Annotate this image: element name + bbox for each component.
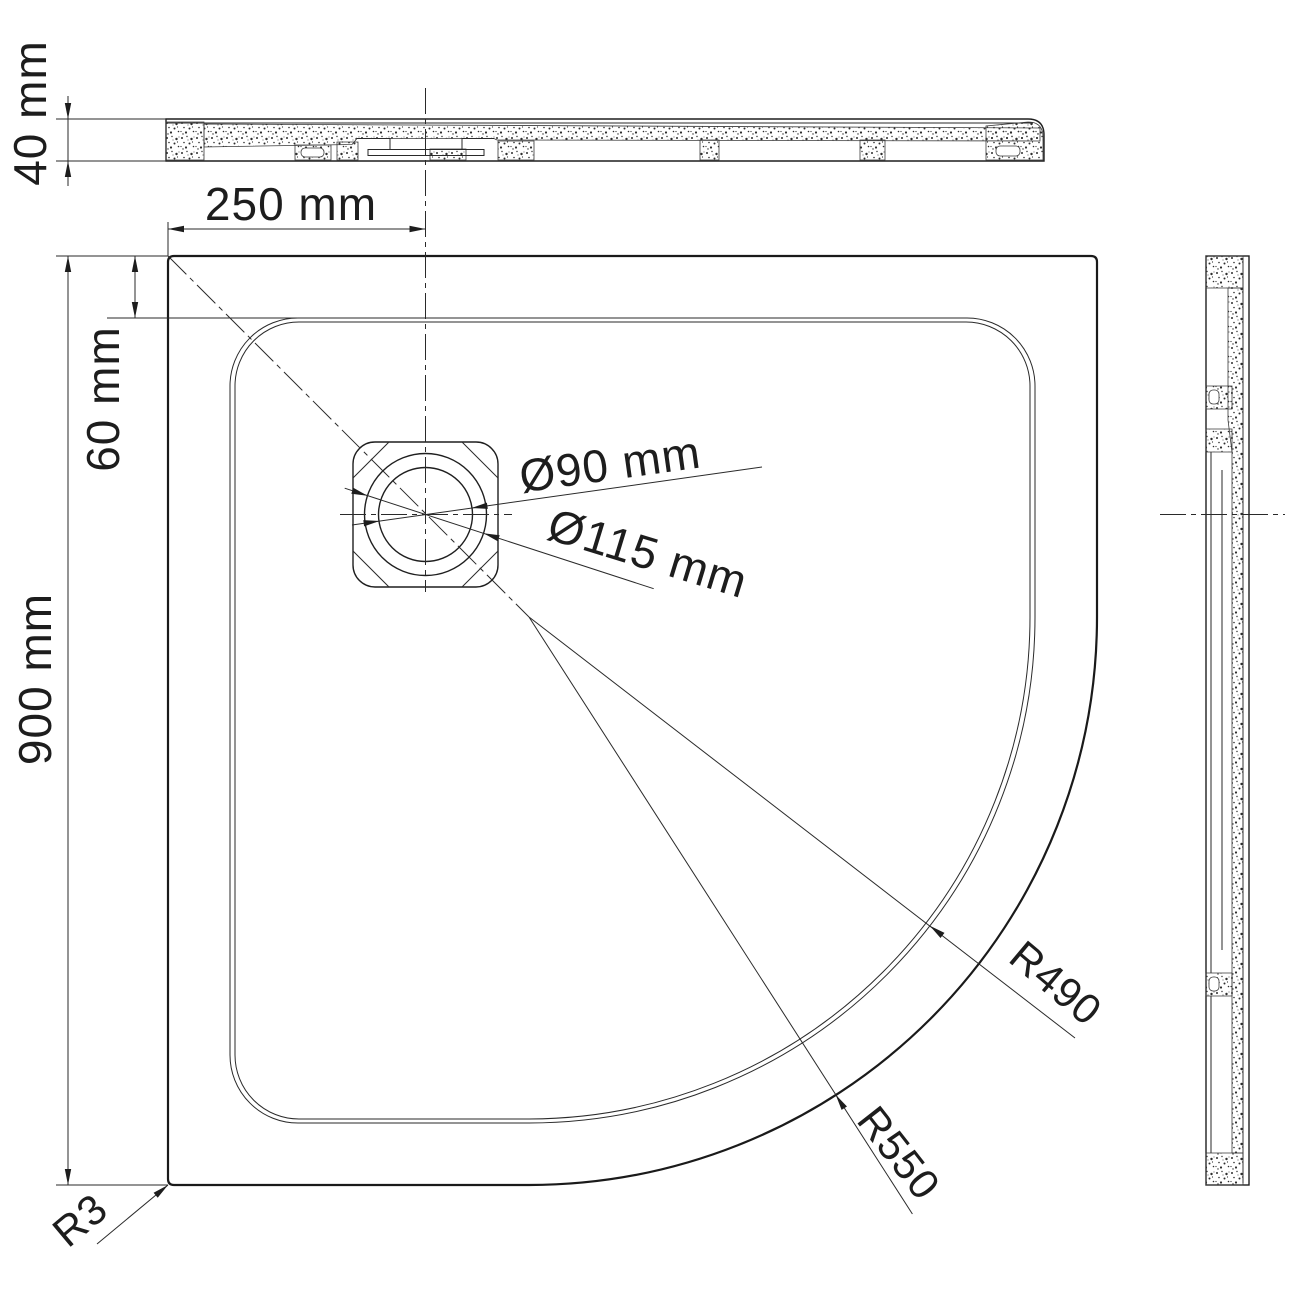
plan-view xyxy=(168,88,1097,1185)
section-drain-shelf xyxy=(430,149,466,160)
technical-drawing-page: 40 mm 250 mm 60 mm 900 mm Ø90 mm Ø115 mm xyxy=(0,0,1300,1300)
side-rib-notch xyxy=(1209,977,1219,991)
dim-thickness: 40 mm xyxy=(4,40,166,186)
side-rib xyxy=(1206,429,1232,452)
section-rib xyxy=(700,140,719,160)
side-top-block xyxy=(1206,256,1243,288)
top-section-view xyxy=(166,119,1044,161)
dim-outer-radius-label: R550 xyxy=(848,1097,949,1208)
section-rib xyxy=(337,142,358,160)
dim-basin-radius: R490 xyxy=(529,617,1111,1038)
side-bottom-block xyxy=(1206,1153,1243,1185)
dim-thickness-label: 40 mm xyxy=(4,40,56,186)
section-drain-shelf xyxy=(498,141,534,160)
dim-drain-inner-dia-label: Ø90 mm xyxy=(516,426,704,503)
dim-edge-radius: R3 xyxy=(44,1184,168,1256)
section-rib-notch xyxy=(996,146,1020,156)
section-left-block xyxy=(166,122,204,160)
dim-drain-flange-dia-label: Ø115 mm xyxy=(542,498,754,608)
diagonal-centerline xyxy=(168,256,529,617)
side-rib-notch xyxy=(1209,390,1219,404)
side-band xyxy=(1228,288,1243,1153)
dim-basin-radius-label: R490 xyxy=(1001,931,1111,1034)
dim-outer-radius: R550 xyxy=(529,617,950,1214)
shower-tray-drawing: 40 mm 250 mm 60 mm 900 mm Ø90 mm Ø115 mm xyxy=(0,0,1300,1300)
dim-rim-width: 60 mm xyxy=(77,256,297,472)
dim-drain-flange-dia: Ø115 mm xyxy=(345,488,754,608)
side-floor-lines xyxy=(1211,452,1222,1153)
side-section-view xyxy=(1160,256,1285,1185)
dim-rim-width-label: 60 mm xyxy=(77,326,129,472)
dim-drain-offset: 250 mm xyxy=(168,178,426,256)
dim-edge-radius-label: R3 xyxy=(44,1184,117,1256)
dim-drain-offset-label: 250 mm xyxy=(205,178,377,230)
section-rib-notch xyxy=(301,148,324,157)
section-top-band xyxy=(204,124,1040,147)
dim-overall-width-label: 900 mm xyxy=(9,593,61,765)
section-rib xyxy=(860,140,885,160)
